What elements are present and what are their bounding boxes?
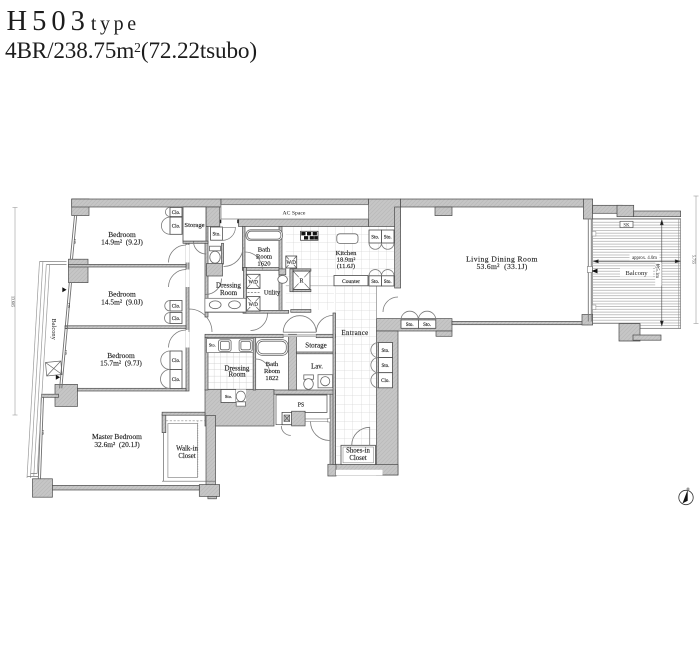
svg-text:R: R xyxy=(299,279,303,285)
svg-text:Bath: Bath xyxy=(266,361,279,368)
svg-text:Storage: Storage xyxy=(184,222,204,229)
svg-text:4BR/238.75m2(72.22tsubo): 4BR/238.75m2(72.22tsubo) xyxy=(5,38,257,64)
svg-text:5.755: 5.755 xyxy=(691,255,696,264)
svg-text:Lav.: Lav. xyxy=(311,364,323,371)
svg-text:Sto.: Sto. xyxy=(225,394,232,399)
svg-text:Sto.: Sto. xyxy=(371,236,379,241)
svg-text:W/D: W/D xyxy=(249,281,259,286)
svg-text:Room: Room xyxy=(228,371,246,379)
svg-text:approx. 4.0m: approx. 4.0m xyxy=(632,256,657,261)
svg-text:FIX: FIX xyxy=(73,239,77,245)
svg-text:Sto.: Sto. xyxy=(381,364,389,369)
svg-text:Shoes-in: Shoes-in xyxy=(346,448,370,455)
svg-text:Sto.: Sto. xyxy=(213,233,221,238)
svg-text:Balcony: Balcony xyxy=(625,270,648,277)
svg-text:Sto.: Sto. xyxy=(423,323,431,328)
svg-text:Clo.: Clo. xyxy=(172,378,180,383)
svg-text:1620: 1620 xyxy=(257,261,271,268)
svg-text:Sto.: Sto. xyxy=(209,343,216,348)
svg-text:Sto.: Sto. xyxy=(371,280,379,285)
svg-text:Closet: Closet xyxy=(178,453,195,460)
svg-text:14.9m² (9.2J): 14.9m² (9.2J) xyxy=(101,238,143,247)
svg-text:FIX: FIX xyxy=(67,303,71,309)
svg-text:Closet: Closet xyxy=(349,455,366,462)
svg-text:FIX: FIX xyxy=(41,430,45,436)
svg-text:Clo.: Clo. xyxy=(172,359,180,364)
svg-text:FIX: FIX xyxy=(64,350,68,356)
svg-text:Sto.: Sto. xyxy=(384,236,392,241)
svg-text:1822: 1822 xyxy=(265,375,278,382)
svg-text:Sto.: Sto. xyxy=(384,280,392,285)
svg-text:Clo.: Clo. xyxy=(172,317,180,322)
svg-text:53.6m² (33.1J): 53.6m² (33.1J) xyxy=(476,262,527,271)
svg-text:Room: Room xyxy=(264,368,281,375)
svg-text:W/D: W/D xyxy=(287,261,297,266)
svg-text:Room: Room xyxy=(220,289,238,297)
svg-text:Room: Room xyxy=(256,254,273,261)
svg-text:Entrance: Entrance xyxy=(342,330,369,337)
svg-text:Clo.: Clo. xyxy=(172,211,180,216)
svg-text:約5.1m: 約5.1m xyxy=(654,264,661,279)
svg-text:Storage: Storage xyxy=(305,342,326,350)
svg-text:13.605: 13.605 xyxy=(10,296,15,307)
svg-text:15.7m² (9.7J): 15.7m² (9.7J) xyxy=(100,359,142,368)
svg-text:Sto.: Sto. xyxy=(381,349,389,354)
svg-text:Sto.: Sto. xyxy=(406,323,414,328)
svg-text:Clo.: Clo. xyxy=(381,379,389,384)
svg-text:PS: PS xyxy=(298,403,304,409)
svg-text:Walk-in: Walk-in xyxy=(176,446,198,453)
svg-text:Balcony: Balcony xyxy=(50,319,57,341)
svg-text:32.6m² (20.1J): 32.6m² (20.1J) xyxy=(94,440,140,449)
svg-text:(11.6J): (11.6J) xyxy=(337,263,355,270)
svg-text:W/D: W/D xyxy=(249,303,259,308)
svg-text:14.5m² (9.0J): 14.5m² (9.0J) xyxy=(101,297,143,306)
svg-text:Bath: Bath xyxy=(258,247,271,254)
svg-text:Clo.: Clo. xyxy=(172,305,180,310)
svg-text:Utility: Utility xyxy=(264,290,281,297)
svg-text:SK: SK xyxy=(623,223,630,228)
svg-text:Clo.: Clo. xyxy=(172,225,180,230)
svg-text:AC Space: AC Space xyxy=(283,210,306,216)
svg-text:Counter: Counter xyxy=(342,279,360,285)
